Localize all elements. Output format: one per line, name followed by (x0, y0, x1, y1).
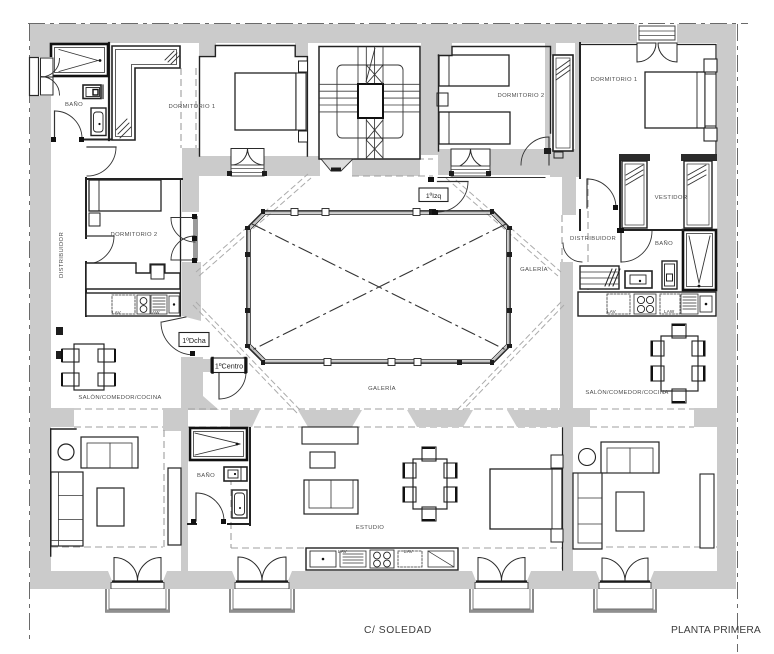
svg-text:AW: AW (152, 310, 160, 315)
svg-text:LAV: LAV (112, 310, 122, 315)
svg-text:ESTUDIO: ESTUDIO (356, 525, 385, 531)
svg-text:DORMITORIO 1: DORMITORIO 1 (591, 77, 638, 83)
svg-text:BAÑO: BAÑO (655, 240, 673, 247)
svg-text:BAÑO: BAÑO (65, 101, 83, 108)
svg-text:1ºIzq: 1ºIzq (426, 193, 442, 200)
svg-text:BAÑO: BAÑO (197, 472, 215, 479)
svg-text:PLANTA PRIMERA: PLANTA PRIMERA (671, 625, 761, 636)
svg-text:DORMITORIO 2: DORMITORIO 2 (111, 232, 158, 238)
svg-text:1ºDcha: 1ºDcha (182, 336, 205, 345)
svg-text:GALERÍA: GALERÍA (520, 266, 548, 273)
svg-text:DORMITORIO 1: DORMITORIO 1 (169, 104, 216, 110)
svg-text:SALÓN/COMEDOR/COCINA: SALÓN/COMEDOR/COCINA (78, 394, 161, 401)
svg-text:LAV: LAV (404, 549, 414, 554)
svg-text:GALERÍA: GALERÍA (368, 385, 396, 392)
svg-text:DISTRIBUIDOR: DISTRIBUIDOR (570, 236, 616, 242)
svg-text:VESTIDOR: VESTIDOR (655, 195, 688, 201)
svg-text:DORMITORIO 2: DORMITORIO 2 (498, 93, 545, 99)
svg-text:C/ SOLEDAD: C/ SOLEDAD (364, 625, 432, 636)
svg-text:LAV: LAV (338, 549, 348, 554)
svg-text:LAW: LAW (664, 309, 675, 314)
svg-text:SALÓN/COMEDOR/COCINA: SALÓN/COMEDOR/COCINA (585, 389, 668, 396)
svg-text:1ºCentro: 1ºCentro (215, 362, 243, 371)
svg-text:LAV: LAV (607, 309, 617, 314)
svg-text:DISTRIBUIDOR: DISTRIBUIDOR (59, 232, 65, 278)
